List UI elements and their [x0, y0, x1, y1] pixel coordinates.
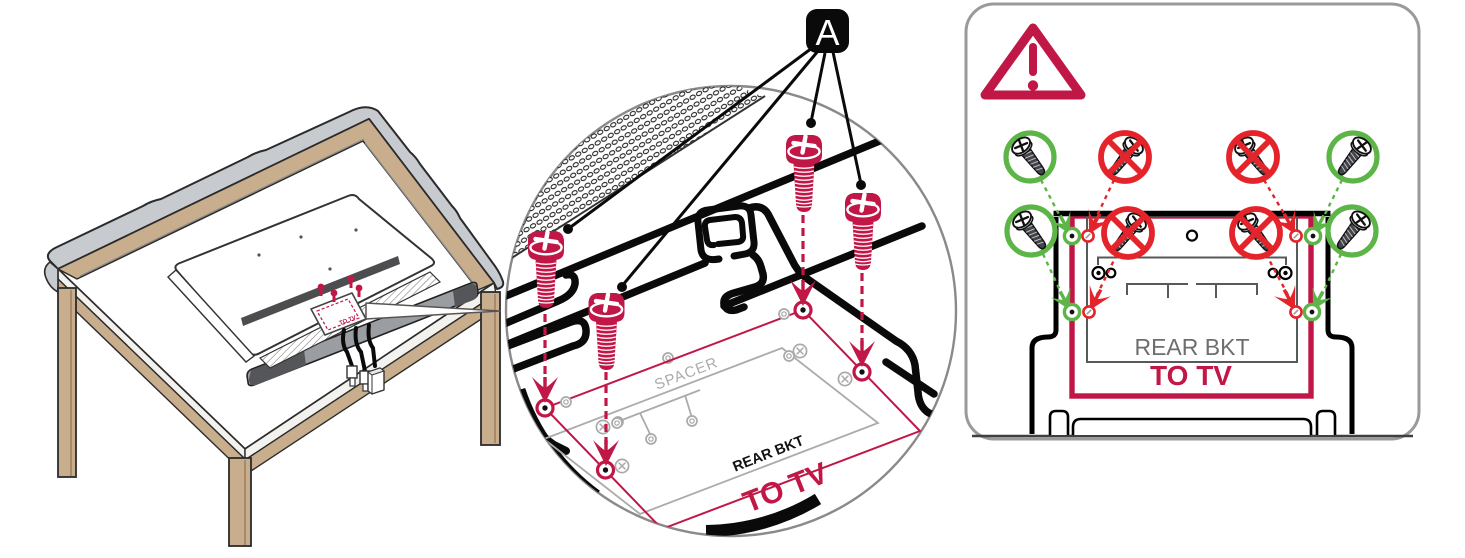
svg-text:REAR BKT: REAR BKT	[1134, 334, 1249, 360]
svg-text:TO TV: TO TV	[1150, 360, 1232, 391]
svg-text:A: A	[815, 12, 839, 53]
